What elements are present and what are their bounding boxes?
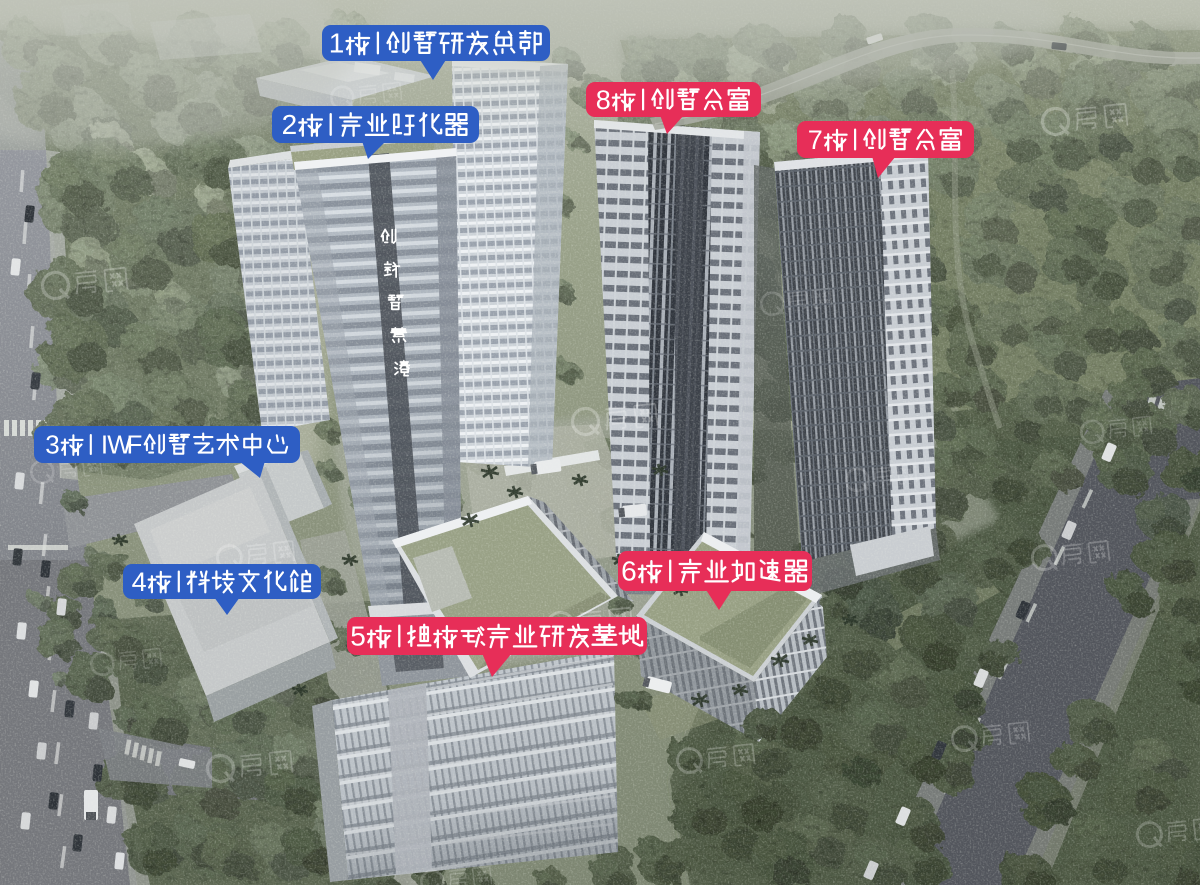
svg-text:4: 4 <box>132 567 147 597</box>
svg-text:F: F <box>127 430 143 460</box>
svg-text:7: 7 <box>808 125 823 155</box>
svg-text:6: 6 <box>621 556 637 587</box>
svg-text:8: 8 <box>596 85 611 115</box>
svg-text:2: 2 <box>282 109 298 140</box>
svg-text:3: 3 <box>45 430 59 460</box>
svg-text:1: 1 <box>329 28 345 59</box>
svg-text:5: 5 <box>350 621 366 652</box>
